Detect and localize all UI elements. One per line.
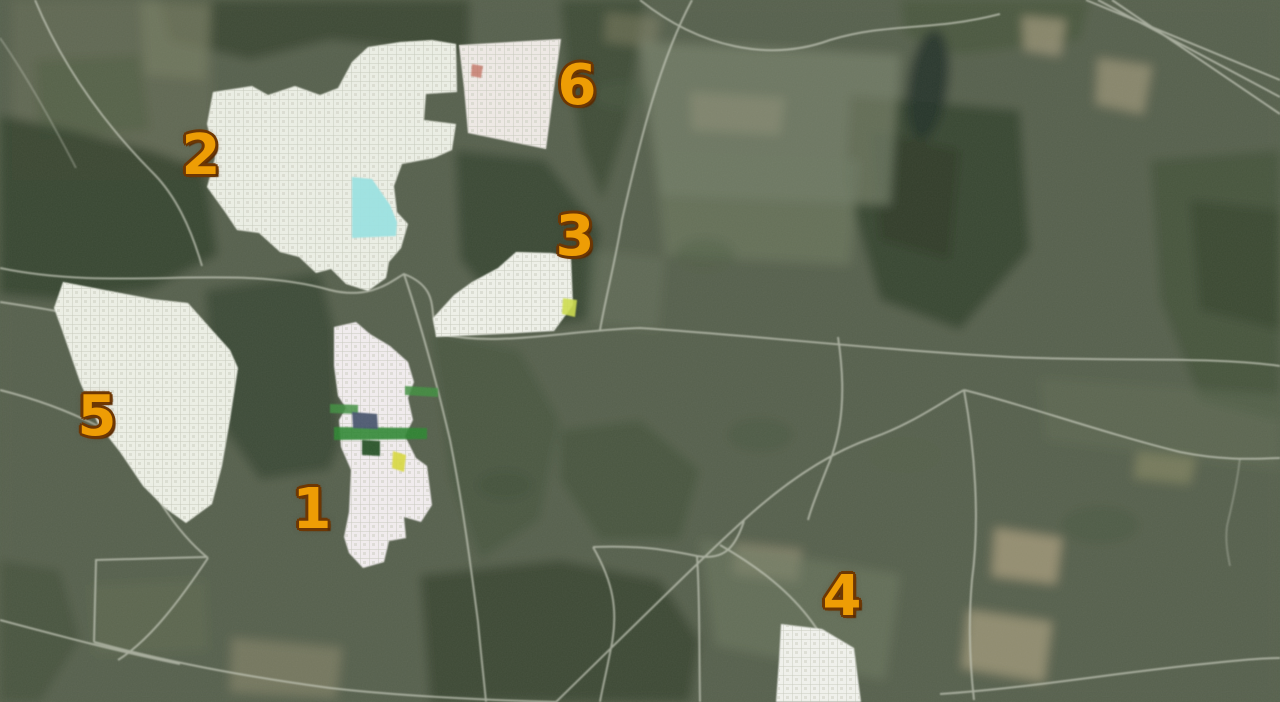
area-marker-5[interactable]: 5 [78, 389, 117, 445]
area-marker-1[interactable]: 1 [293, 482, 332, 538]
area-marker-4[interactable]: 4 [823, 569, 862, 625]
grain-overlay [0, 0, 1280, 702]
map-canvas [0, 0, 1280, 702]
area-marker-2[interactable]: 2 [182, 128, 221, 184]
area-marker-3[interactable]: 3 [556, 209, 595, 265]
satellite-map-view: 1 2 3 4 5 6 [0, 0, 1280, 702]
area-marker-6[interactable]: 6 [558, 58, 597, 114]
